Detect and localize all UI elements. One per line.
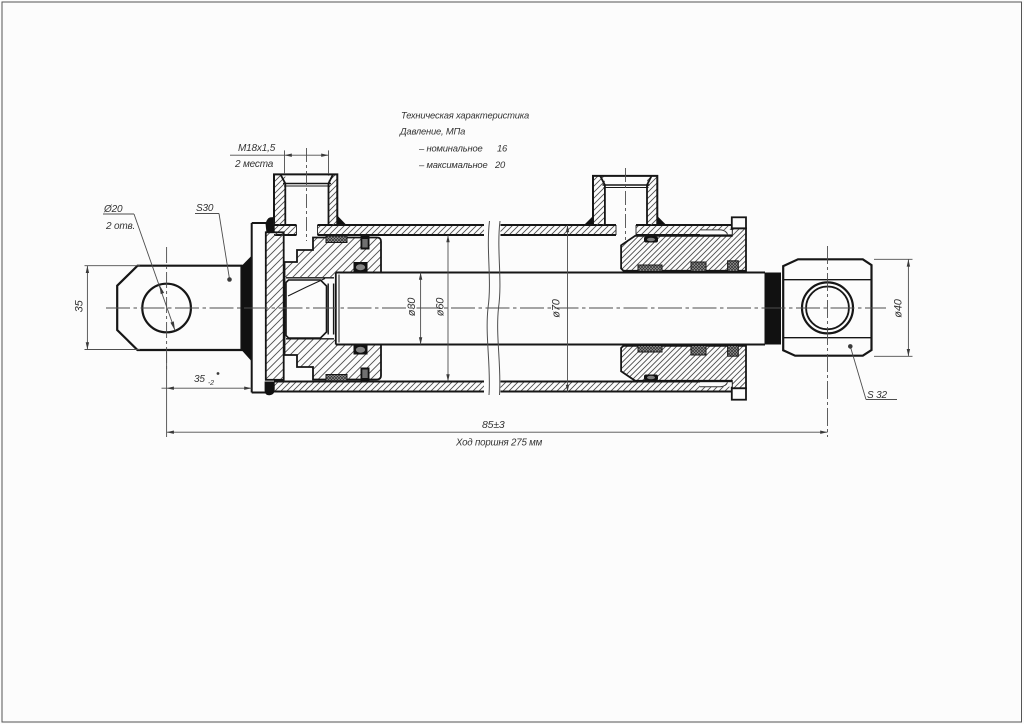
svg-text:Давление, МПа: Давление, МПа (399, 126, 465, 137)
svg-text:2 отв.: 2 отв. (105, 221, 135, 232)
svg-text:M18x1,5: M18x1,5 (238, 143, 276, 154)
svg-text:– максимальное: – максимальное (418, 159, 488, 170)
svg-text:35: 35 (194, 374, 205, 385)
svg-text:2 места: 2 места (234, 159, 274, 170)
svg-text:Техническая характеристика: Техническая характеристика (401, 110, 529, 121)
svg-text:ø40: ø40 (893, 298, 905, 317)
svg-text:16: 16 (497, 143, 508, 154)
svg-text:Ход поршня 275 мм: Ход поршня 275 мм (455, 438, 543, 449)
svg-text:S 32: S 32 (867, 390, 887, 401)
svg-text:-2: -2 (208, 380, 214, 387)
svg-text:S30: S30 (196, 203, 214, 214)
svg-text:20: 20 (494, 159, 506, 170)
svg-text:85±3: 85±3 (482, 419, 505, 431)
svg-text:35: 35 (74, 299, 86, 312)
svg-text:Ø20: Ø20 (103, 204, 123, 215)
svg-text:ø60: ø60 (435, 297, 447, 316)
svg-text:– номинальное: – номинальное (418, 143, 483, 154)
svg-text:ø30: ø30 (406, 297, 418, 316)
svg-text:ø70: ø70 (551, 298, 563, 317)
